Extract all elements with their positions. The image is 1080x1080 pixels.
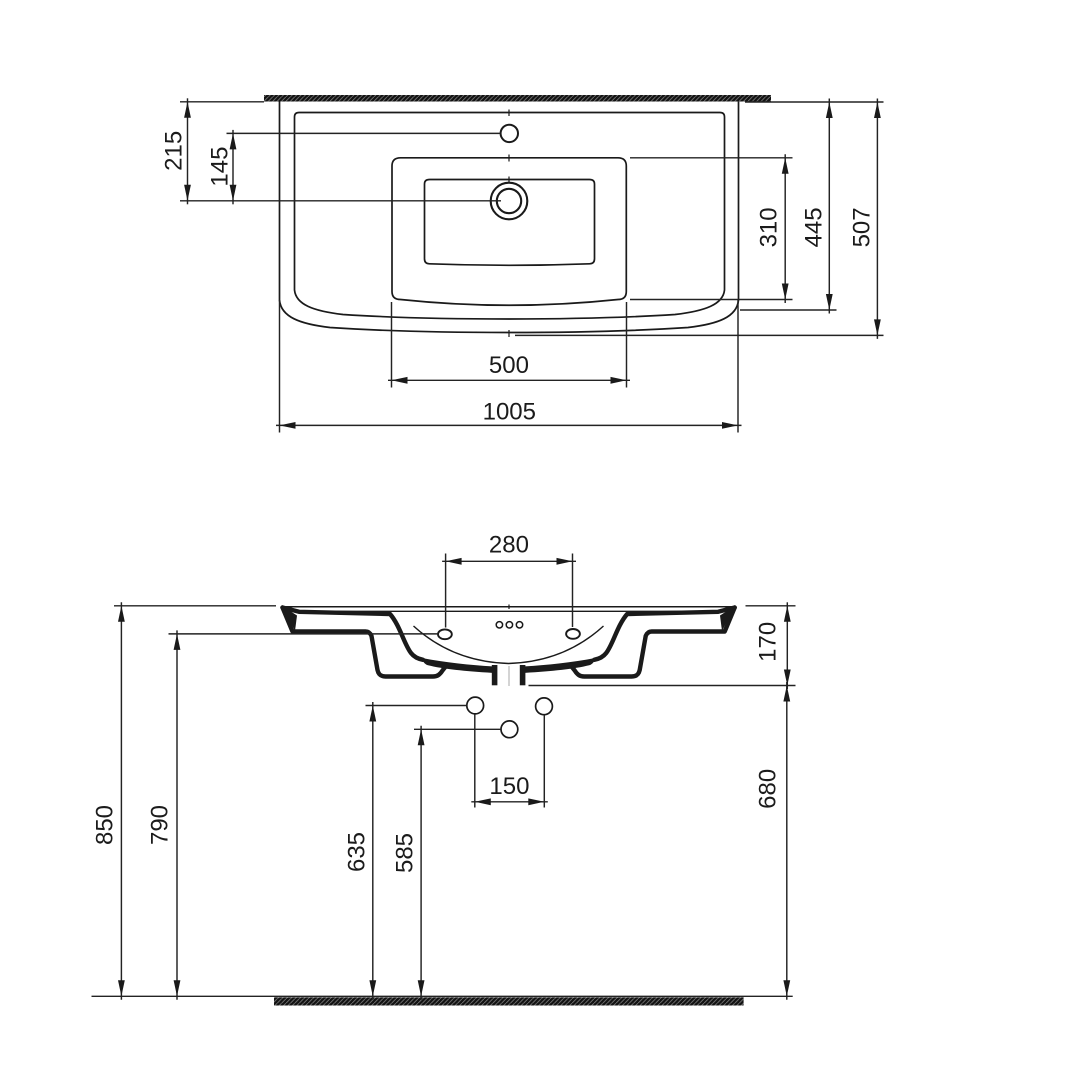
svg-text:445: 445 (801, 207, 828, 247)
svg-text:215: 215 (160, 131, 187, 171)
svg-text:850: 850 (92, 805, 119, 845)
svg-text:1005: 1005 (483, 398, 536, 425)
svg-text:585: 585 (392, 833, 419, 873)
svg-text:790: 790 (147, 805, 174, 845)
svg-text:500: 500 (489, 352, 529, 379)
svg-text:507: 507 (848, 207, 875, 247)
svg-text:280: 280 (489, 532, 529, 559)
svg-text:150: 150 (489, 773, 529, 800)
svg-text:310: 310 (755, 207, 782, 247)
svg-text:170: 170 (755, 622, 782, 662)
svg-text:680: 680 (755, 769, 782, 809)
svg-text:635: 635 (344, 832, 371, 872)
svg-text:145: 145 (207, 147, 234, 187)
